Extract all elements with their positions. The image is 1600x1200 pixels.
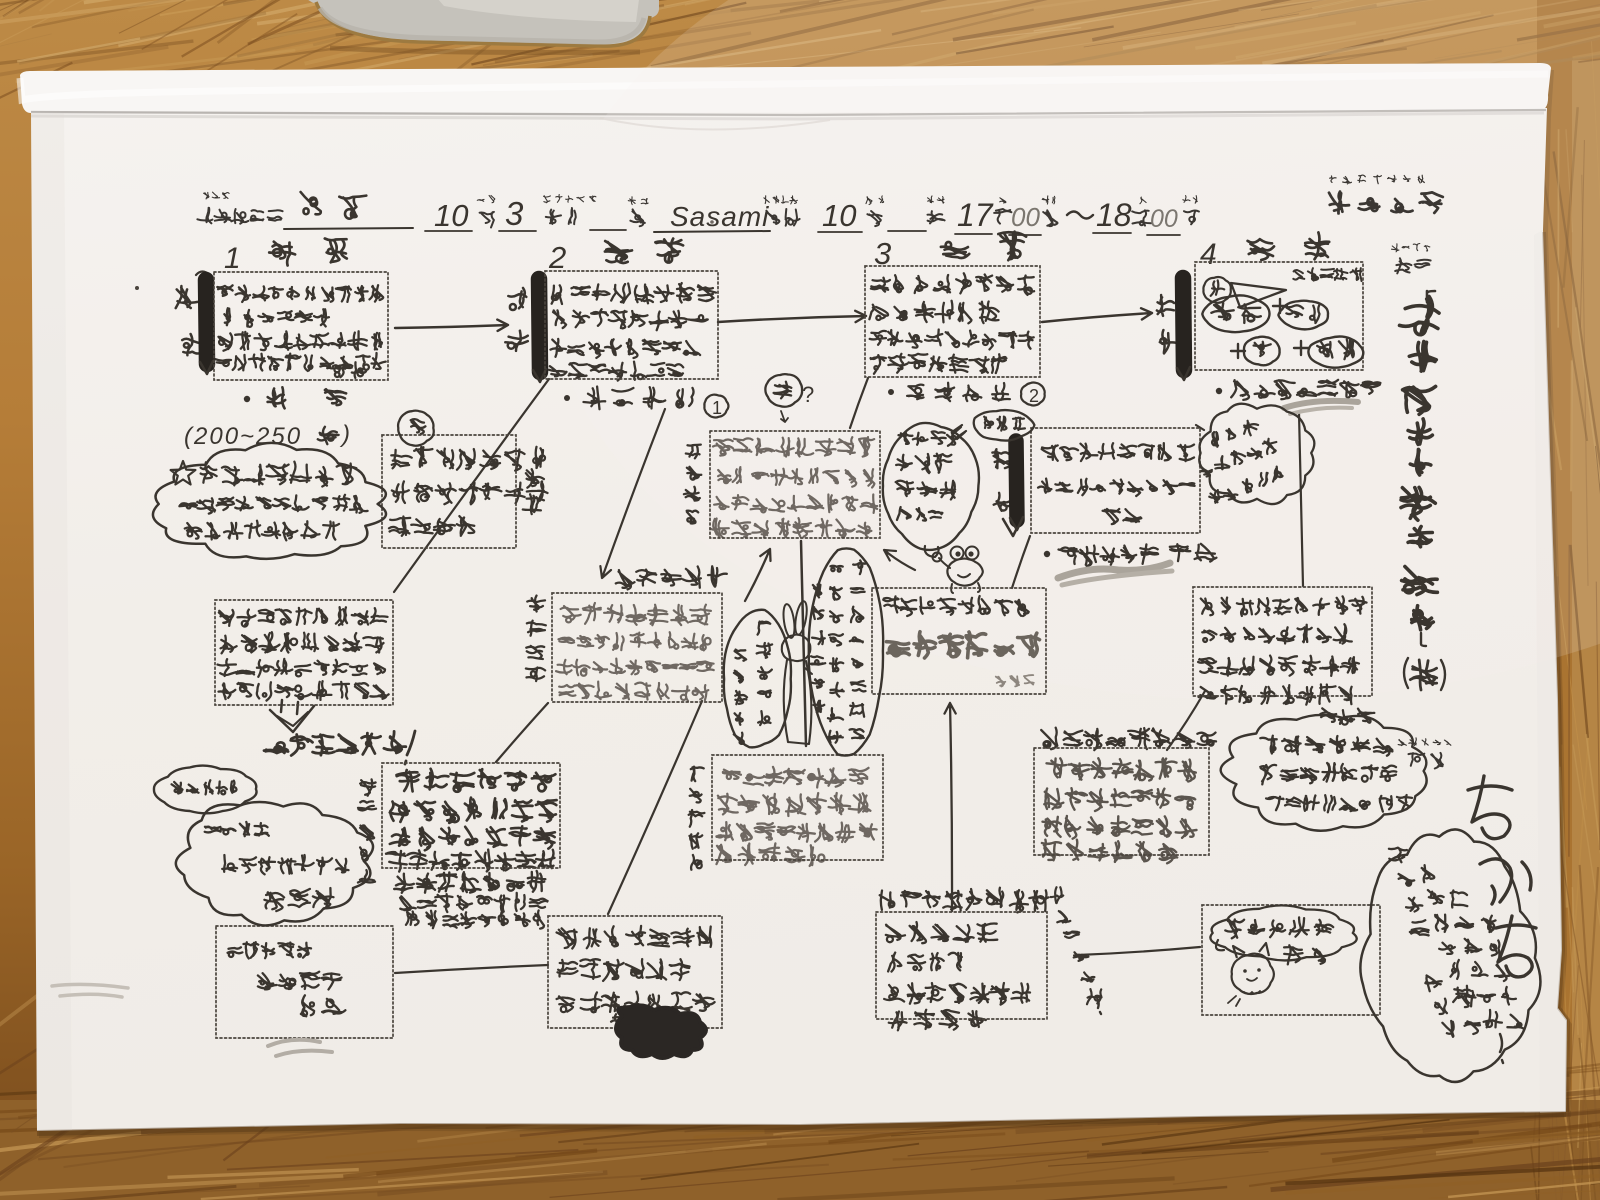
svg-text:1: 1 <box>224 242 241 275</box>
svg-text:?: ? <box>802 382 814 407</box>
svg-text:4: 4 <box>1200 238 1217 271</box>
svg-text:17: 17 <box>957 197 994 233</box>
svg-text:2: 2 <box>1029 386 1039 406</box>
svg-text:Sasami: Sasami <box>670 201 769 232</box>
svg-text:00: 00 <box>1011 202 1040 232</box>
svg-text:3: 3 <box>505 195 524 232</box>
svg-text:2: 2 <box>548 240 566 275</box>
svg-text:00: 00 <box>1150 205 1178 233</box>
svg-text:10: 10 <box>822 198 856 233</box>
svg-text:1: 1 <box>712 398 722 418</box>
svg-text:18: 18 <box>1096 197 1132 233</box>
svg-text:10: 10 <box>434 198 468 233</box>
